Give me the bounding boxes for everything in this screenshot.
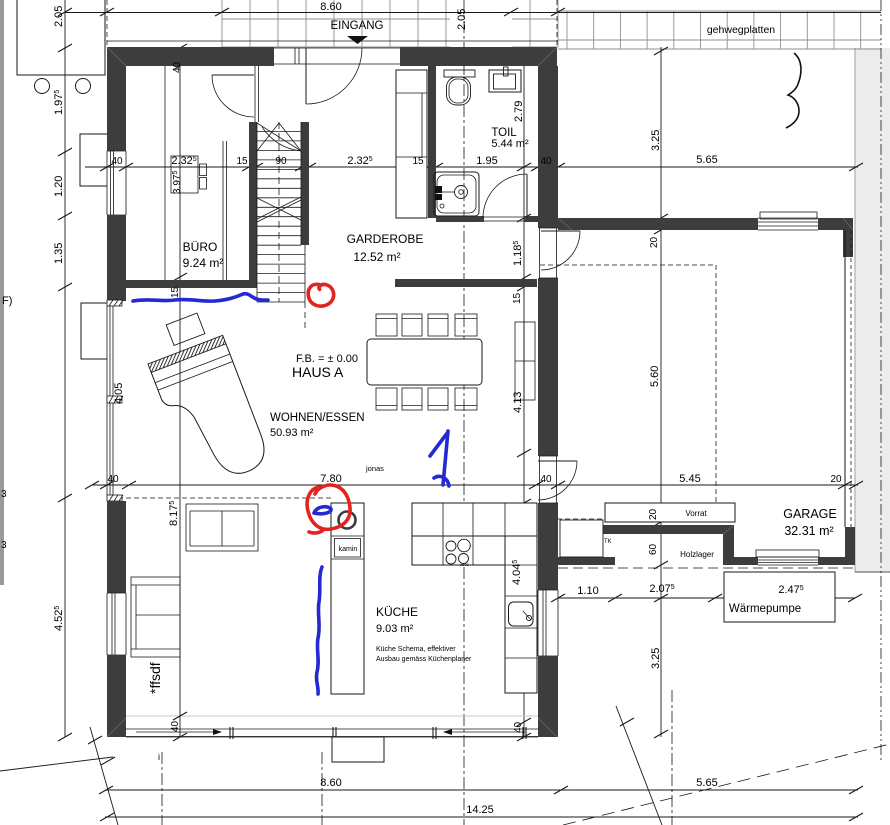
svg-text:40: 40	[170, 720, 181, 732]
svg-text:40: 40	[540, 156, 552, 167]
svg-text:3.25: 3.25	[650, 130, 662, 151]
svg-text:BÜRO: BÜRO	[183, 240, 218, 254]
svg-text:Wärmepumpe: Wärmepumpe	[729, 603, 801, 615]
svg-text:3: 3	[1, 489, 7, 500]
svg-text:90: 90	[275, 156, 287, 167]
svg-text:12.52 m²: 12.52 m²	[353, 250, 400, 264]
svg-text:4.05: 4.05	[113, 383, 125, 404]
svg-text:40: 40	[111, 156, 123, 167]
svg-text:2.05: 2.05	[456, 9, 468, 30]
svg-text:F): F)	[2, 295, 12, 307]
svg-text:WOHNEN/ESSEN: WOHNEN/ESSEN	[270, 412, 365, 424]
svg-text:gehwegplatten: gehwegplatten	[707, 24, 775, 36]
svg-text:4.13: 4.13	[512, 392, 524, 413]
svg-text:2.79: 2.79	[513, 101, 525, 122]
svg-text:5.45: 5.45	[679, 473, 700, 485]
svg-text:GARDEROBE: GARDEROBE	[347, 232, 424, 246]
svg-text:14.25: 14.25	[466, 804, 494, 816]
svg-text:kamin: kamin	[339, 546, 358, 553]
svg-text:32.31 m²: 32.31 m²	[784, 524, 833, 538]
svg-text:HAUS A: HAUS A	[292, 364, 344, 380]
svg-text:9.03 m²: 9.03 m²	[376, 623, 414, 635]
svg-text:15: 15	[512, 292, 523, 304]
svg-text:3: 3	[1, 540, 7, 551]
svg-text:Küche Schema, effektiver: Küche Schema, effektiver	[376, 646, 456, 653]
svg-text:40: 40	[172, 61, 183, 73]
svg-text:20: 20	[648, 508, 659, 520]
svg-text:Ausbau gemäss Küchenplaner: Ausbau gemäss Küchenplaner	[376, 656, 472, 663]
svg-text:jonas: jonas	[365, 464, 384, 473]
svg-text:Vorrat: Vorrat	[685, 509, 707, 518]
svg-text:5.60: 5.60	[649, 366, 661, 387]
svg-text:1.20: 1.20	[53, 176, 65, 197]
svg-text:20: 20	[649, 236, 660, 248]
svg-text:i: i	[158, 752, 160, 762]
svg-text:2.05: 2.05	[53, 6, 65, 27]
svg-text:60: 60	[648, 543, 659, 555]
svg-text:9.24 m²: 9.24 m²	[183, 256, 224, 270]
svg-text:5.65: 5.65	[696, 154, 717, 166]
svg-text:KÜCHE: KÜCHE	[376, 605, 418, 619]
svg-text:20: 20	[830, 474, 842, 485]
svg-text:*ffsdf: *ffsdf	[147, 662, 163, 694]
svg-text:1.35: 1.35	[53, 243, 65, 264]
svg-text:1.95: 1.95	[476, 155, 497, 167]
svg-text:8.60: 8.60	[320, 777, 341, 789]
svg-text:5.44 m²: 5.44 m²	[491, 138, 529, 150]
svg-text:7.80: 7.80	[320, 473, 341, 485]
svg-text:EINGANG: EINGANG	[330, 20, 383, 32]
svg-text:1.10: 1.10	[577, 585, 598, 597]
svg-text:8.60: 8.60	[320, 1, 341, 13]
svg-text:50.93 m²: 50.93 m²	[270, 427, 314, 439]
svg-text:40: 40	[107, 474, 119, 485]
svg-text:3.25: 3.25	[650, 648, 662, 669]
svg-text:15: 15	[170, 286, 181, 298]
svg-text:40: 40	[540, 474, 552, 485]
svg-text:15: 15	[236, 156, 248, 167]
svg-text:40: 40	[513, 721, 524, 733]
svg-text:15: 15	[412, 156, 424, 167]
svg-text:TK: TK	[604, 539, 612, 545]
svg-text:GARAGE: GARAGE	[783, 507, 837, 521]
svg-text:5.65: 5.65	[696, 777, 717, 789]
svg-text:Holzlager: Holzlager	[680, 550, 714, 559]
svg-text:o500: o500	[460, 562, 470, 567]
